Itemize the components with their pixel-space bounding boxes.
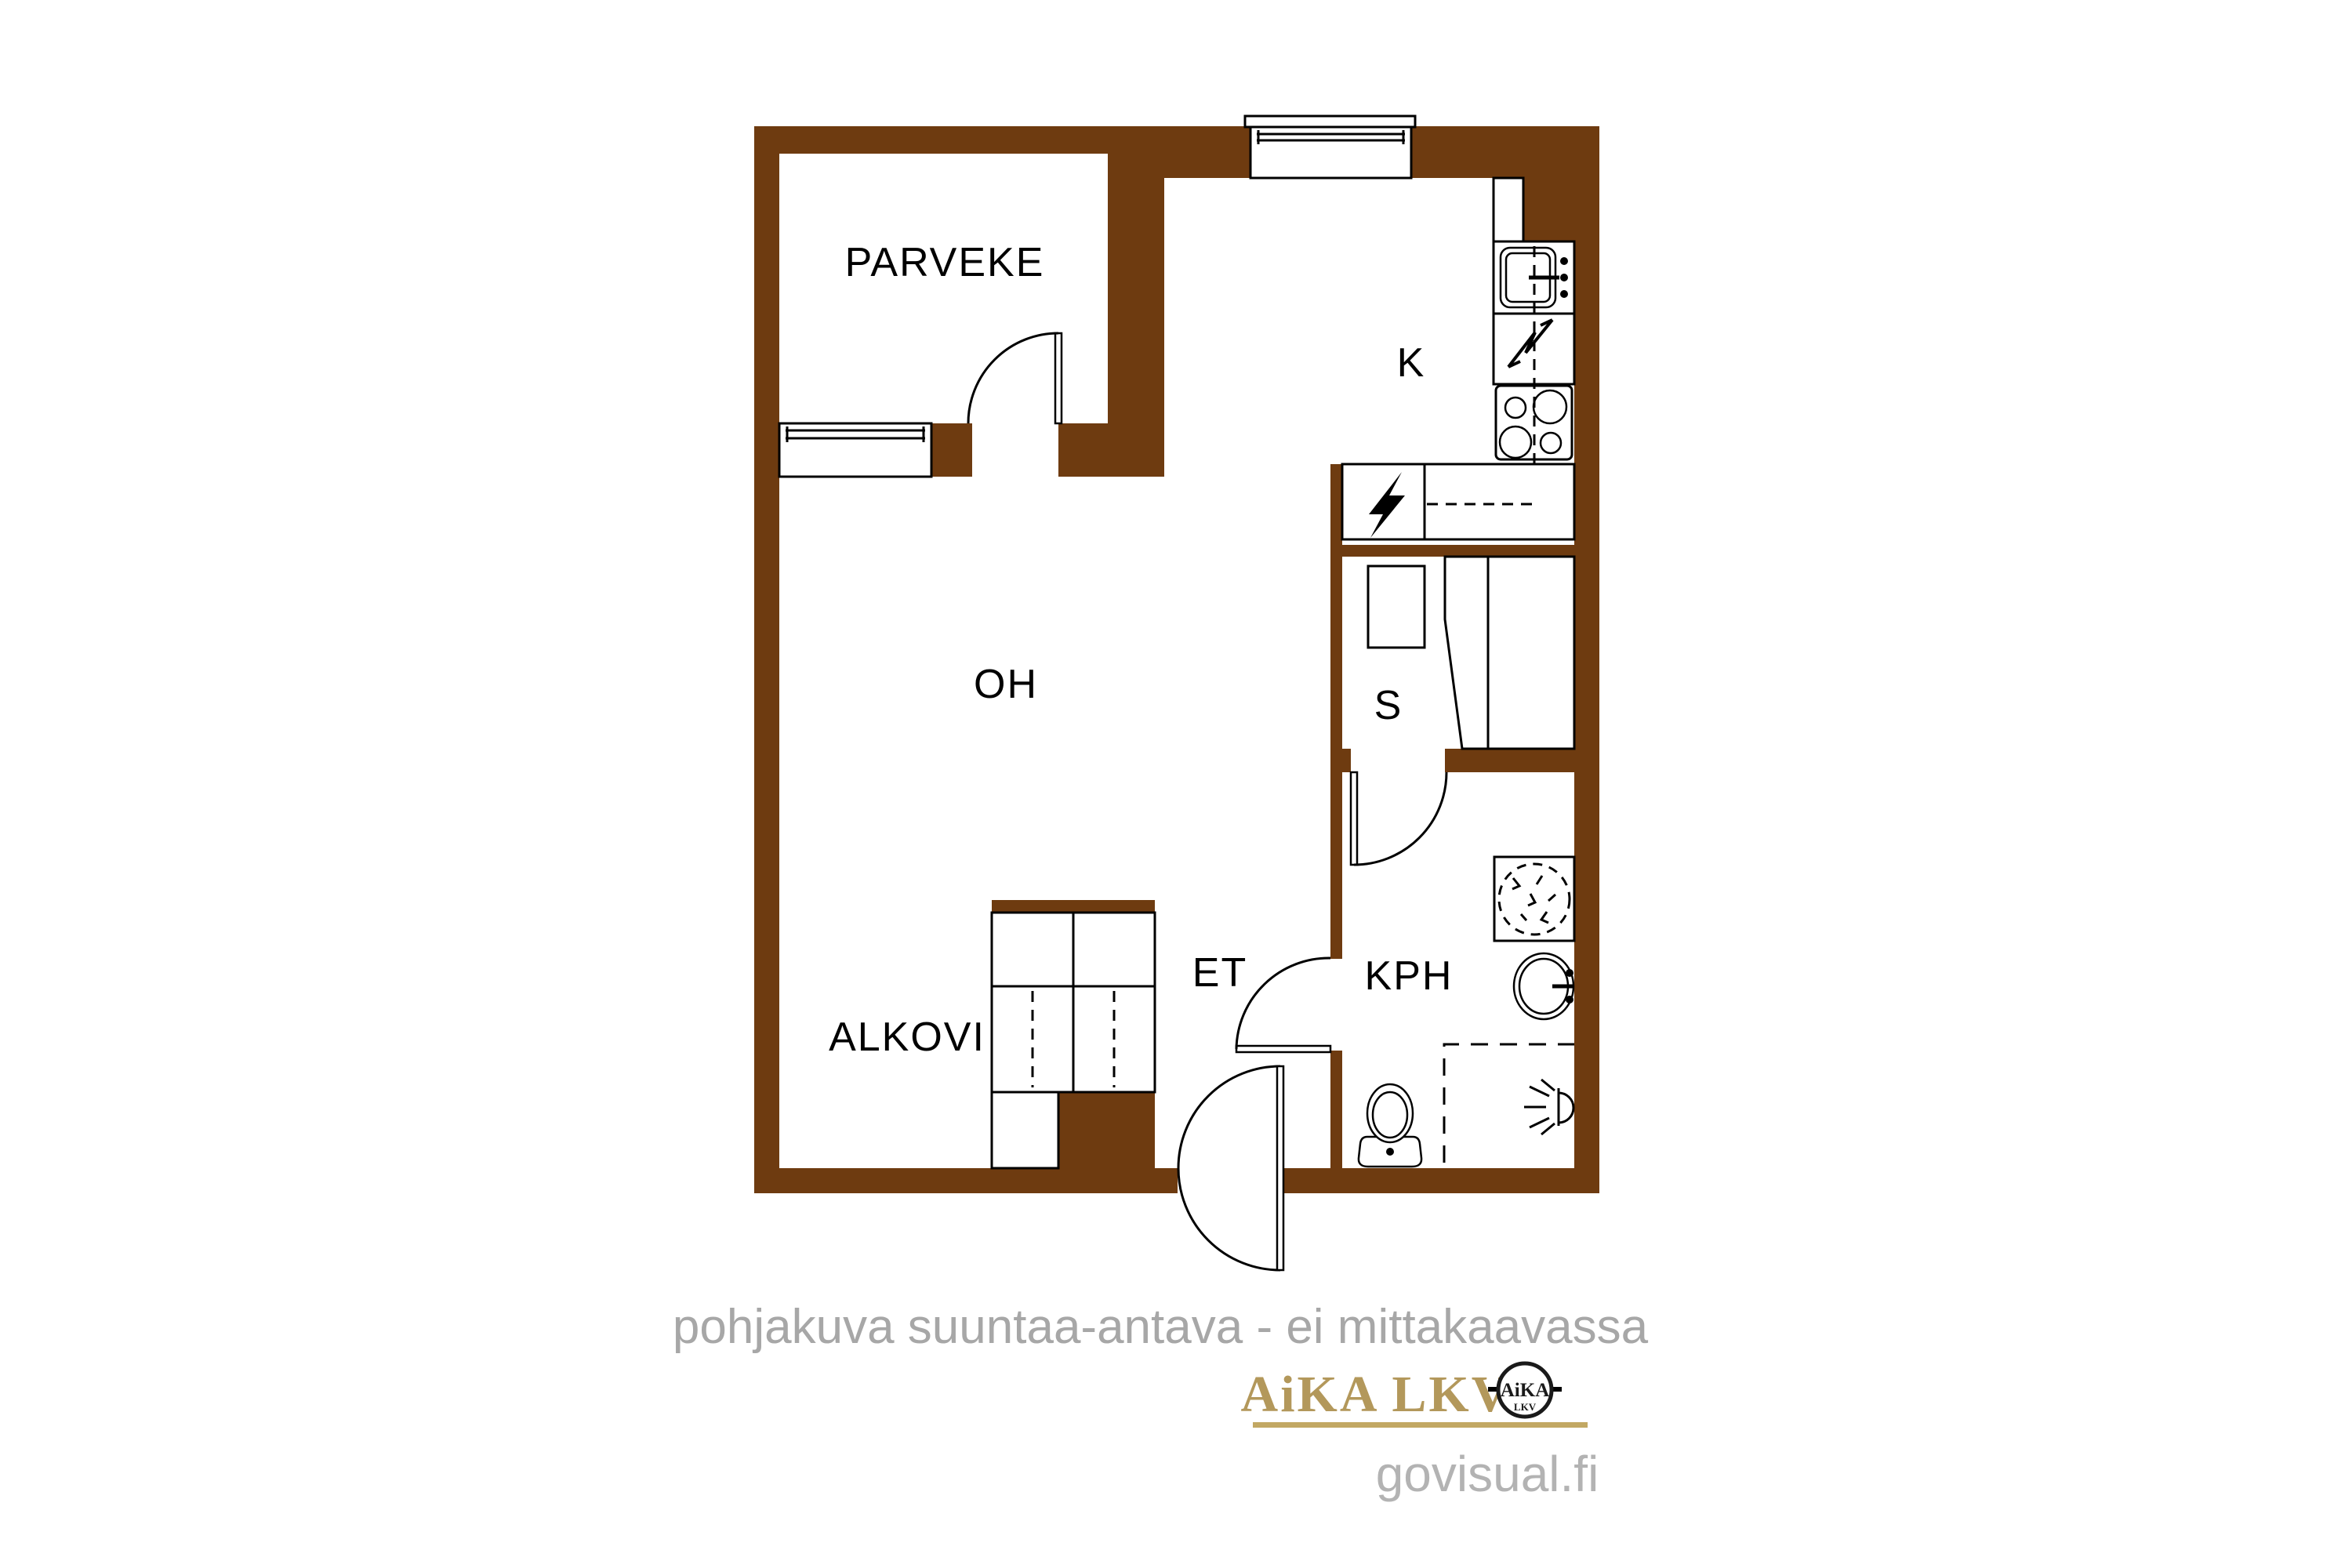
floorplan-canvas: PARVEKE K OH S ET KPH ALKOVI pohjakuva s… <box>0 0 2352 1568</box>
stove-burner-4 <box>1541 433 1561 453</box>
toilet-bowl-inner <box>1373 1092 1407 1138</box>
wall-left <box>754 154 779 1193</box>
wall-mid-vertical-a <box>1330 464 1342 749</box>
kitchen-faucet-dot-2 <box>1560 274 1568 281</box>
toilet-button <box>1386 1148 1394 1156</box>
brand-text: AiKA LKV <box>1241 1366 1512 1423</box>
sauna-heater-icon <box>1368 566 1425 648</box>
wall-kitchen-corner-block <box>1523 178 1599 241</box>
bathroom-door-leaf <box>1236 1046 1330 1052</box>
wall-kitchen-sauna-divider <box>1330 545 1574 557</box>
bathroom-faucet-dot-2 <box>1566 996 1573 1004</box>
disclaimer-text: pohjakuva suuntaa-antava - ei mittakaava… <box>673 1300 1649 1354</box>
room-label-parveke: PARVEKE <box>845 240 1045 285</box>
cabinet-icon <box>992 1092 1058 1168</box>
wall-mid-vertical-b <box>1330 772 1342 959</box>
kitchen-window-sill <box>1245 116 1415 127</box>
room-label-oh: OH <box>974 662 1038 707</box>
kitchen-window-icon <box>1245 116 1415 178</box>
sauna-bench-upper <box>1488 557 1574 749</box>
room-label-s: S <box>1374 683 1403 728</box>
wall-right <box>1574 241 1599 1193</box>
website-text: govisual.fi <box>1376 1446 1599 1502</box>
wall-wardrobe-stub <box>992 900 1155 913</box>
kitchen-faucet-dot-3 <box>1560 290 1568 298</box>
tall-cabinet-icon <box>1494 178 1523 241</box>
room-label-et: ET <box>1192 950 1247 996</box>
room-label-kph: KPH <box>1365 953 1454 999</box>
wall-wardrobe-fill <box>1058 1092 1155 1168</box>
wall-top-kitchen-right <box>1411 126 1599 178</box>
balcony-window-icon <box>779 423 931 477</box>
wall-bottom-right <box>1281 1168 1599 1193</box>
wall-balcony-right-band <box>1108 154 1164 477</box>
stove-burner-3 <box>1500 426 1531 458</box>
brand-underline <box>1253 1422 1588 1428</box>
bathroom-sink-icon <box>1514 953 1573 1019</box>
wall-balcony-pier-2 <box>1058 423 1108 477</box>
room-label-alkovi: ALKOVI <box>829 1014 985 1060</box>
wall-top-kitchen-left <box>1164 126 1250 178</box>
balcony-door-leaf <box>1055 333 1062 423</box>
kitchen-faucet-dot-1 <box>1560 257 1568 265</box>
kitchen-counter <box>1342 464 1574 539</box>
washing-machine-icon <box>1494 857 1574 941</box>
bathroom-faucet-dot-1 <box>1566 969 1573 977</box>
wall-sauna-stub <box>1330 749 1351 772</box>
wall-balcony-pier-1 <box>931 423 972 477</box>
wall-mid-vertical-c <box>1330 1051 1342 1168</box>
entry-door-leaf <box>1277 1066 1283 1270</box>
wall-bottom-left <box>754 1168 1178 1193</box>
sauna-door-leaf <box>1351 772 1357 865</box>
room-label-k: K <box>1397 340 1426 386</box>
logo-bottom-text: LKV <box>1514 1401 1537 1413</box>
logo-top-text: AiKA <box>1501 1380 1550 1401</box>
wall-top-left <box>754 126 1164 154</box>
wall-sauna-bottom <box>1445 749 1574 772</box>
stove-burner-2 <box>1534 390 1566 423</box>
stove-burner-1 <box>1505 397 1526 418</box>
